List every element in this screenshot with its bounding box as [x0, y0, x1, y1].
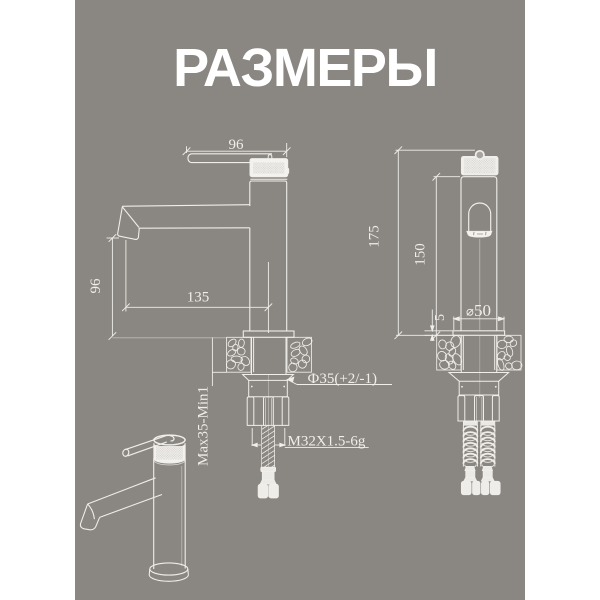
svg-text:96: 96: [229, 137, 245, 153]
svg-text:5: 5: [433, 314, 448, 321]
svg-text:175: 175: [367, 225, 383, 248]
svg-text:96: 96: [88, 278, 104, 294]
svg-text:⌀: ⌀: [466, 304, 474, 319]
svg-text:150: 150: [413, 243, 429, 266]
svg-text:M32X1.5-6g: M32X1.5-6g: [288, 434, 366, 450]
svg-text:Ф35(+2/-1): Ф35(+2/-1): [308, 371, 377, 387]
svg-text:Max35-Min1: Max35-Min1: [196, 386, 212, 466]
svg-text:135: 135: [187, 290, 210, 306]
svg-text:50: 50: [474, 301, 491, 320]
svg-text:РАЗМЕРЫ: РАЗМЕРЫ: [173, 38, 437, 98]
